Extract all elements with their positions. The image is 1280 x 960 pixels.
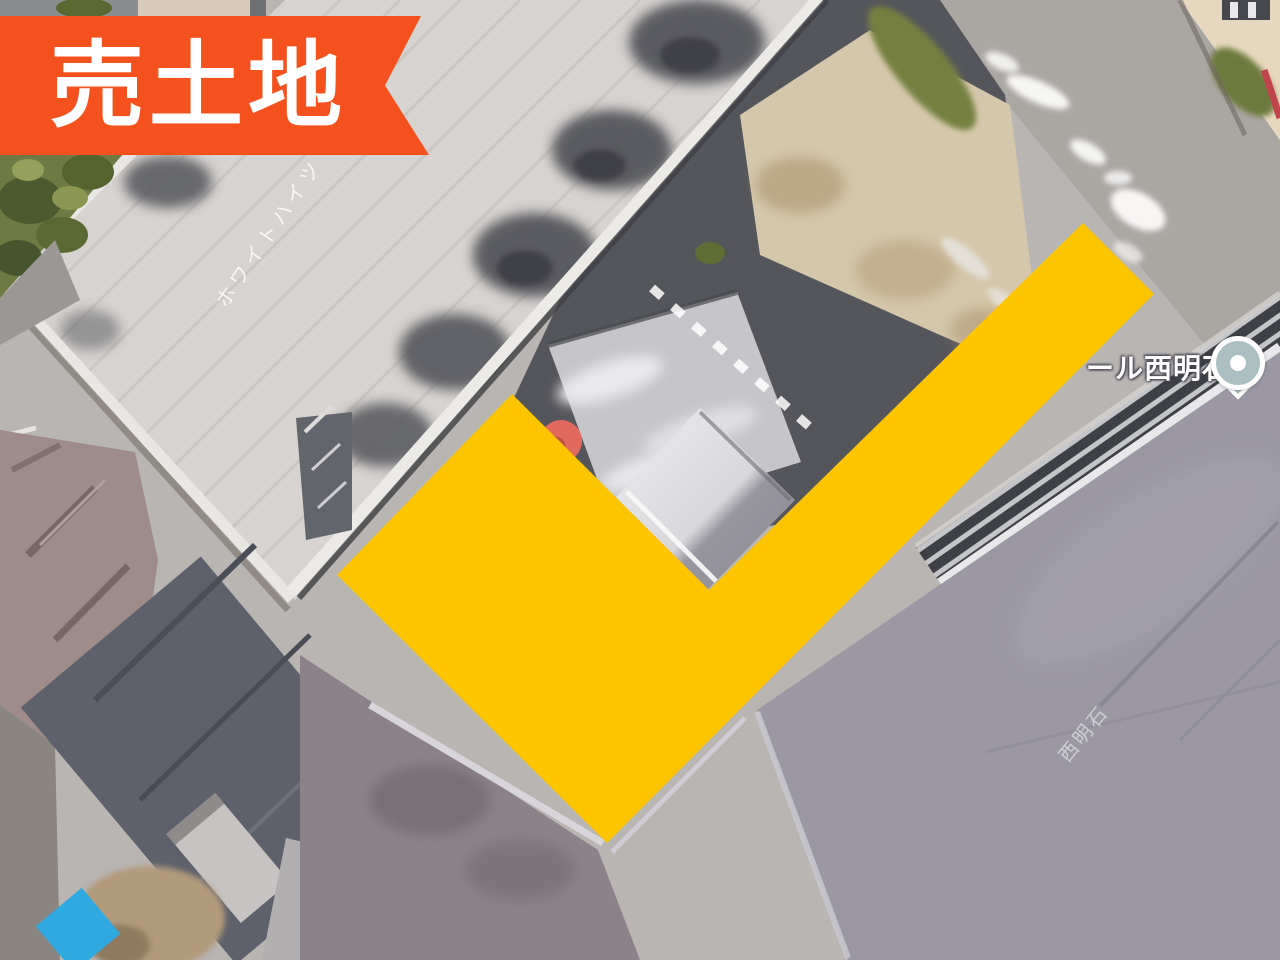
poi-marker[interactable] xyxy=(1211,336,1265,390)
sale-ribbon: 売土地 xyxy=(0,16,430,155)
map-viewport[interactable]: ホワイトハイツ 西明石 ール西明石 売土地 xyxy=(0,0,1280,960)
top-edge-buildings xyxy=(0,0,266,18)
poi-marker-dot xyxy=(1230,355,1246,371)
poi-label: ール西明石 xyxy=(1086,347,1231,387)
sale-ribbon-label: 売土地 xyxy=(0,16,430,155)
poi-marker-body xyxy=(1211,336,1265,390)
